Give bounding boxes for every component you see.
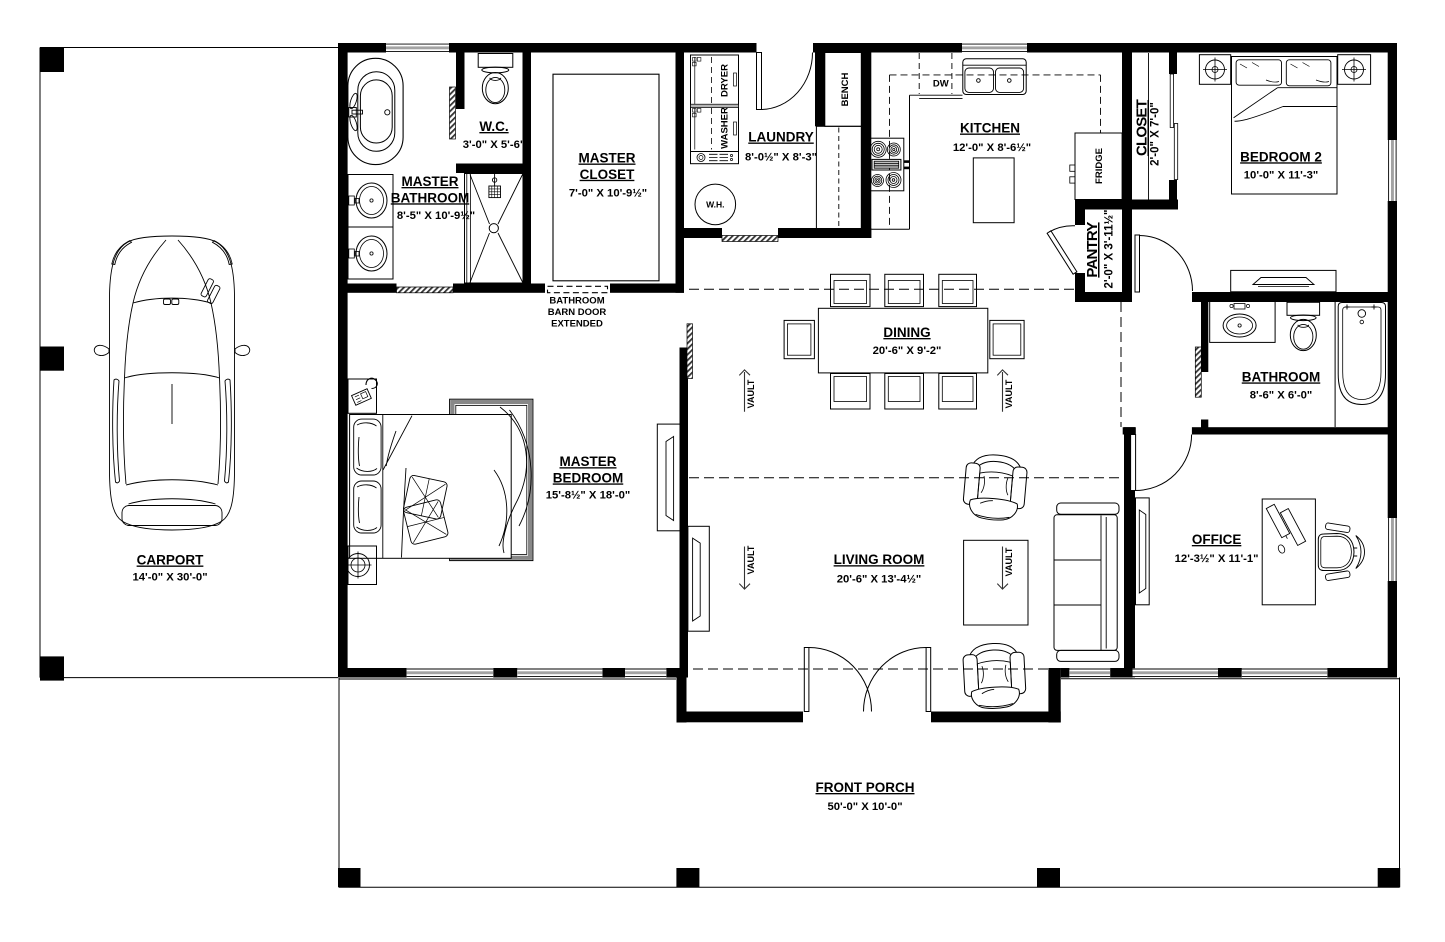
svg-text:VAULT: VAULT: [1004, 379, 1014, 408]
svg-text:10'-0" X 11'-3": 10'-0" X 11'-3": [1244, 170, 1319, 182]
svg-text:DINING: DINING: [883, 325, 930, 340]
svg-text:LAUNDRY: LAUNDRY: [748, 130, 814, 145]
svg-text:2'-0" X 3'-11½": 2'-0" X 3'-11½": [1103, 209, 1115, 288]
svg-text:50'-0" X 10'-0": 50'-0" X 10'-0": [827, 801, 902, 813]
svg-text:VAULT: VAULT: [746, 379, 756, 408]
svg-text:KITCHEN: KITCHEN: [960, 121, 1020, 136]
svg-text:14'-0" X 30'-0": 14'-0" X 30'-0": [132, 572, 207, 584]
svg-text:BARN DOOR: BARN DOOR: [548, 307, 607, 318]
svg-text:12'-3½" X 11'-1": 12'-3½" X 11'-1": [1175, 553, 1259, 565]
svg-text:WASHER: WASHER: [720, 107, 731, 149]
svg-text:VAULT: VAULT: [1004, 547, 1014, 576]
svg-text:CLOSET: CLOSET: [1134, 99, 1151, 156]
svg-text:MASTER: MASTER: [402, 174, 459, 189]
svg-text:20'-6" X 9'-2": 20'-6" X 9'-2": [873, 345, 942, 357]
svg-text:12'-0" X 8'-6½": 12'-0" X 8'-6½": [953, 142, 1031, 154]
svg-text:BEDROOM 2: BEDROOM 2: [1240, 149, 1322, 164]
svg-text:3'-0" X 5'-6": 3'-0" X 5'-6": [463, 139, 526, 151]
svg-text:W.H.: W.H.: [706, 200, 724, 210]
svg-text:DRYER: DRYER: [720, 64, 731, 97]
svg-text:EXTENDED: EXTENDED: [551, 319, 603, 330]
svg-text:7'-0" X 10'-9½": 7'-0" X 10'-9½": [569, 188, 647, 200]
svg-text:LIVING ROOM: LIVING ROOM: [834, 552, 925, 567]
svg-text:OFFICE: OFFICE: [1192, 532, 1242, 547]
svg-text:PANTRY: PANTRY: [1084, 222, 1101, 278]
svg-text:FRIDGE: FRIDGE: [1094, 148, 1105, 184]
svg-text:20'-6" X 13'-4½": 20'-6" X 13'-4½": [837, 573, 922, 585]
svg-text:MASTER: MASTER: [579, 151, 636, 166]
svg-text:8'-6" X 6'-0": 8'-6" X 6'-0": [1250, 390, 1313, 402]
svg-text:W.C.: W.C.: [479, 119, 508, 134]
svg-text:15'-8½" X 18'-0": 15'-8½" X 18'-0": [546, 490, 631, 502]
svg-text:VAULT: VAULT: [746, 545, 756, 574]
svg-text:2'-0" X 7'-0": 2'-0" X 7'-0": [1150, 102, 1162, 166]
svg-text:BATHROOM: BATHROOM: [1242, 369, 1321, 384]
svg-text:BEDROOM: BEDROOM: [553, 470, 624, 485]
svg-text:CARPORT: CARPORT: [137, 553, 205, 568]
svg-text:BATHROOM: BATHROOM: [391, 190, 470, 205]
svg-text:CLOSET: CLOSET: [580, 167, 636, 182]
svg-text:8'-0½" X 8'-3": 8'-0½" X 8'-3": [745, 152, 817, 164]
svg-text:8'-5" X 10'-9½": 8'-5" X 10'-9½": [397, 210, 475, 222]
svg-text:FRONT PORCH: FRONT PORCH: [816, 780, 915, 795]
svg-text:BENCH: BENCH: [840, 72, 851, 106]
svg-text:MASTER: MASTER: [560, 454, 617, 469]
svg-text:BATHROOM: BATHROOM: [549, 296, 604, 307]
svg-text:DW: DW: [933, 79, 949, 90]
